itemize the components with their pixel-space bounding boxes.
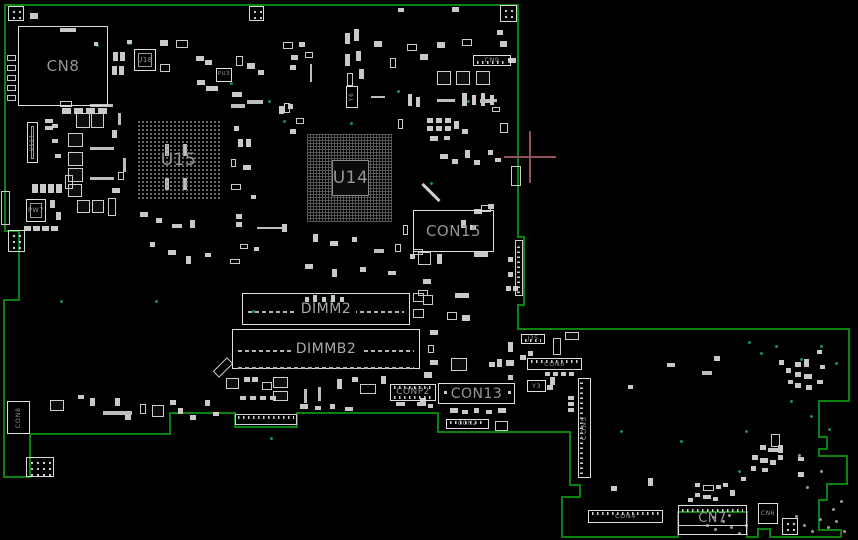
small-component xyxy=(506,360,514,366)
small-component xyxy=(40,184,46,193)
small-component xyxy=(127,40,132,44)
small-component xyxy=(206,86,218,91)
small-component xyxy=(395,244,401,252)
small-component xyxy=(486,410,492,414)
small-component xyxy=(273,377,288,388)
small-component xyxy=(352,237,357,242)
small-component xyxy=(78,395,84,399)
component-label-pw7: PW7 xyxy=(28,207,44,214)
component-label-con6: CON6 xyxy=(544,361,565,368)
small-component xyxy=(77,200,90,213)
small-component xyxy=(282,224,287,232)
small-component xyxy=(356,51,361,61)
small-component xyxy=(230,259,240,264)
small-component xyxy=(488,150,493,155)
small-component xyxy=(444,136,450,140)
small-component xyxy=(290,65,296,70)
small-component xyxy=(702,371,712,375)
small-component xyxy=(506,286,511,291)
small-component xyxy=(243,165,251,170)
small-component xyxy=(152,405,164,417)
via-dot xyxy=(835,520,838,523)
small-component xyxy=(30,13,38,19)
component-label-con2: CON2 xyxy=(458,421,477,427)
small-component xyxy=(786,368,791,373)
component-y6[interactable]: Y6 xyxy=(346,86,358,108)
small-component xyxy=(820,365,825,369)
small-component xyxy=(232,92,242,97)
small-component xyxy=(283,42,293,49)
small-component xyxy=(32,184,38,193)
boardview-canvas: CN8U18PU3CN9Y6U15U14US04PW7CON15DIMM2DIM… xyxy=(0,0,858,540)
component-con5[interactable]: CON5 xyxy=(578,378,591,478)
small-component xyxy=(62,108,71,114)
small-component xyxy=(236,56,243,66)
small-component xyxy=(568,408,574,412)
component-label-u18: U18 xyxy=(137,57,153,64)
small-component xyxy=(714,356,720,361)
small-component xyxy=(51,226,58,231)
small-component xyxy=(445,118,451,123)
small-component xyxy=(611,486,617,491)
small-component xyxy=(160,40,168,46)
small-component xyxy=(511,166,521,186)
small-component xyxy=(760,458,768,463)
small-component xyxy=(474,408,479,413)
component-label-u15: U15 xyxy=(161,152,197,169)
small-component xyxy=(388,271,396,275)
small-component xyxy=(428,345,434,353)
small-component xyxy=(296,118,304,124)
small-component xyxy=(508,375,513,380)
small-component xyxy=(291,55,298,60)
small-component xyxy=(257,227,283,229)
small-component xyxy=(770,460,776,465)
small-component xyxy=(648,478,653,486)
component-label-con8: CON8 xyxy=(16,407,22,428)
small-component xyxy=(246,139,251,147)
via-dot xyxy=(819,518,822,521)
component-label-cn6: CN6 xyxy=(761,511,775,517)
small-component xyxy=(354,29,359,41)
small-component xyxy=(804,374,812,379)
small-component xyxy=(413,293,424,302)
small-component xyxy=(68,152,83,166)
small-component xyxy=(528,351,533,356)
small-component xyxy=(476,71,490,85)
small-component xyxy=(258,70,264,75)
small-component xyxy=(695,493,700,497)
small-component xyxy=(7,95,16,101)
component-label-us04: US04 xyxy=(30,134,35,151)
small-component xyxy=(68,133,83,147)
small-component xyxy=(226,378,239,389)
small-component xyxy=(371,96,385,98)
small-component xyxy=(515,240,523,296)
small-component xyxy=(390,58,396,68)
small-component xyxy=(498,408,506,413)
small-component xyxy=(56,212,61,220)
small-component xyxy=(703,485,714,491)
small-component xyxy=(374,41,382,47)
small-component xyxy=(452,7,459,12)
small-component xyxy=(497,30,503,35)
small-component xyxy=(254,247,259,251)
small-component xyxy=(688,498,693,502)
small-component xyxy=(561,372,566,376)
via-dot xyxy=(840,500,843,503)
small-component xyxy=(33,226,40,231)
test-point xyxy=(268,100,271,103)
small-component xyxy=(768,448,778,452)
component-con4[interactable]: CON4 xyxy=(588,510,663,523)
small-component xyxy=(695,483,700,487)
small-component xyxy=(454,121,459,129)
test-point xyxy=(283,120,286,123)
component-label-conp2: CONP2 xyxy=(396,388,430,397)
small-component xyxy=(90,147,114,150)
small-component xyxy=(407,44,417,51)
small-component xyxy=(447,312,457,320)
small-component xyxy=(196,56,204,61)
small-component xyxy=(170,400,176,405)
via-dot xyxy=(820,470,823,473)
small-component xyxy=(7,85,16,91)
via-dot xyxy=(827,526,830,529)
component-label-pu3: PU3 xyxy=(218,72,230,78)
small-component xyxy=(150,242,155,247)
small-component xyxy=(178,408,183,414)
small-component xyxy=(156,218,162,223)
component-cn7[interactable]: CN7 xyxy=(678,505,747,535)
small-component xyxy=(795,383,801,388)
small-component xyxy=(703,495,711,499)
small-component xyxy=(723,483,728,487)
test-point xyxy=(430,182,433,185)
component-label-dimmb2: DIMMB2 xyxy=(291,342,362,356)
small-component xyxy=(120,52,125,61)
small-component xyxy=(205,253,211,257)
small-component xyxy=(427,126,433,131)
small-component xyxy=(430,360,438,365)
component-label-con13: CON13 xyxy=(451,387,503,401)
component-u14[interactable]: U14 xyxy=(307,134,392,222)
small-component xyxy=(359,69,364,79)
small-component xyxy=(251,195,256,199)
small-component xyxy=(428,404,433,408)
small-component xyxy=(423,295,433,305)
small-component xyxy=(330,404,335,409)
small-component xyxy=(730,490,735,496)
small-component xyxy=(492,107,500,112)
component-dimm2[interactable]: DIMM2 xyxy=(242,293,410,325)
small-component xyxy=(547,385,553,390)
via-dot xyxy=(803,524,806,527)
small-component xyxy=(52,139,58,143)
small-component xyxy=(437,254,442,264)
via-dot xyxy=(832,508,835,511)
small-component xyxy=(462,410,468,414)
component-cn6[interactable]: CN6 xyxy=(758,503,778,524)
test-point xyxy=(835,362,838,365)
component-label-con5: CON5 xyxy=(581,416,588,440)
small-component xyxy=(352,377,358,382)
small-component xyxy=(423,279,431,284)
small-component xyxy=(112,66,117,75)
small-component xyxy=(247,100,263,104)
test-point xyxy=(775,345,778,348)
small-component xyxy=(569,372,574,376)
fiducial-mark xyxy=(26,457,54,477)
small-component xyxy=(7,65,16,71)
small-component xyxy=(205,60,212,65)
small-component xyxy=(300,404,308,409)
test-point xyxy=(397,90,400,93)
small-component xyxy=(244,377,250,382)
small-component xyxy=(445,126,451,131)
small-component xyxy=(462,315,470,321)
small-component xyxy=(234,126,239,131)
small-component xyxy=(235,414,297,425)
test-point xyxy=(350,122,353,125)
test-point xyxy=(745,430,748,433)
small-component xyxy=(751,466,756,471)
small-component xyxy=(337,379,342,389)
small-component xyxy=(305,52,313,58)
small-component xyxy=(172,224,182,228)
small-component xyxy=(91,113,104,128)
small-component xyxy=(168,250,176,255)
test-point xyxy=(270,437,273,440)
small-component xyxy=(299,42,305,47)
test-point xyxy=(748,341,751,344)
component-conp2[interactable]: CONP2 xyxy=(390,384,436,401)
small-component xyxy=(247,63,255,69)
via-dot xyxy=(806,486,809,489)
small-component xyxy=(760,445,766,450)
small-component xyxy=(108,198,116,216)
small-component xyxy=(140,404,146,414)
component-con6[interactable]: CON6 xyxy=(527,358,582,370)
small-component xyxy=(550,377,555,385)
small-component xyxy=(240,244,248,249)
small-component xyxy=(778,445,783,453)
small-component xyxy=(55,154,61,158)
small-component xyxy=(628,385,633,389)
fiducial-mark xyxy=(782,518,798,535)
small-component xyxy=(817,380,823,384)
small-component xyxy=(752,455,758,460)
small-component xyxy=(398,119,403,129)
small-component xyxy=(315,406,321,410)
small-component xyxy=(252,377,258,382)
small-component xyxy=(7,55,16,61)
board-outline-path xyxy=(4,5,849,537)
small-component xyxy=(381,376,386,384)
test-point xyxy=(800,358,803,361)
small-component xyxy=(231,184,241,190)
bga-die: U14 xyxy=(332,160,369,196)
small-component xyxy=(92,200,104,213)
component-label-con15: CON15 xyxy=(426,224,481,239)
small-component xyxy=(318,387,321,401)
small-component xyxy=(374,249,384,253)
test-point xyxy=(810,415,813,418)
component-label-cn9: CN9 xyxy=(484,57,499,64)
component-label-j25: J25 xyxy=(528,336,539,342)
fiducial-mark xyxy=(8,230,25,252)
small-component xyxy=(806,385,812,390)
test-point xyxy=(467,100,470,103)
component-cn9[interactable]: CN9 xyxy=(473,55,511,66)
small-component xyxy=(90,177,114,180)
component-con2[interactable]: CON2 xyxy=(446,419,489,429)
small-component xyxy=(520,355,526,360)
small-component xyxy=(508,257,513,262)
small-component xyxy=(260,396,266,400)
small-component xyxy=(213,412,219,416)
small-component xyxy=(408,94,412,106)
test-point xyxy=(60,300,63,303)
test-point xyxy=(738,470,741,473)
test-point xyxy=(828,428,831,431)
component-us04[interactable]: US04 xyxy=(27,122,38,163)
small-component xyxy=(250,396,256,400)
small-component xyxy=(500,41,507,47)
small-component xyxy=(568,402,574,406)
small-component xyxy=(452,159,458,164)
small-component xyxy=(418,252,431,265)
component-label-dimm2: DIMM2 xyxy=(296,302,356,316)
small-component xyxy=(205,400,210,406)
fiducial-mark xyxy=(8,6,24,21)
small-component xyxy=(160,64,170,72)
small-component xyxy=(290,129,296,134)
small-component xyxy=(190,415,196,420)
small-component xyxy=(403,225,408,235)
fiducial-mark xyxy=(500,5,517,22)
small-component xyxy=(345,407,353,411)
small-component xyxy=(50,400,64,411)
small-component xyxy=(176,40,188,48)
component-y3[interactable]: Y3 xyxy=(527,380,546,392)
small-component xyxy=(451,358,467,371)
small-component xyxy=(430,136,438,141)
component-pu3[interactable]: PU3 xyxy=(216,68,232,82)
small-component xyxy=(190,220,195,228)
small-component xyxy=(1,191,10,225)
small-component xyxy=(741,477,746,481)
small-component xyxy=(236,222,242,227)
component-pw7[interactable]: PW7 xyxy=(26,199,46,222)
small-component xyxy=(304,389,307,403)
small-component xyxy=(716,485,721,489)
component-con15[interactable]: CON15 xyxy=(413,210,494,252)
via-dot xyxy=(811,530,814,533)
small-component xyxy=(90,398,95,406)
component-label-u14: U14 xyxy=(333,170,369,187)
test-point xyxy=(820,345,823,348)
small-component xyxy=(779,360,784,365)
small-component xyxy=(798,457,804,461)
small-component xyxy=(667,363,675,367)
small-component xyxy=(347,73,353,86)
small-component xyxy=(240,396,246,400)
small-component xyxy=(118,113,121,125)
test-point xyxy=(760,352,763,355)
component-cn8[interactable]: CN8 xyxy=(18,26,108,106)
small-component xyxy=(437,71,451,85)
small-component xyxy=(236,214,242,219)
small-component xyxy=(125,415,131,420)
small-component xyxy=(396,402,405,406)
small-component xyxy=(123,158,126,172)
small-component xyxy=(472,95,476,105)
small-component xyxy=(788,380,793,384)
small-component xyxy=(553,372,558,376)
component-u18[interactable]: U18 xyxy=(134,49,156,71)
small-component xyxy=(140,212,148,217)
small-component xyxy=(462,39,472,46)
test-point xyxy=(230,82,233,85)
small-component xyxy=(495,158,501,162)
small-component xyxy=(508,272,513,277)
small-component xyxy=(270,396,276,400)
via-dot xyxy=(843,530,846,533)
component-con13[interactable]: CON13 xyxy=(438,383,515,404)
small-component xyxy=(345,54,350,66)
component-label-con4: CON4 xyxy=(615,513,636,520)
small-component xyxy=(778,455,783,460)
small-component xyxy=(45,119,53,123)
small-component xyxy=(713,497,718,501)
small-component xyxy=(462,129,468,134)
small-component xyxy=(56,184,62,193)
small-component xyxy=(65,175,73,189)
small-component xyxy=(7,75,16,81)
small-component xyxy=(42,226,49,231)
small-component xyxy=(450,408,458,413)
small-component xyxy=(112,188,120,193)
small-component xyxy=(313,234,318,242)
test-point xyxy=(620,430,623,433)
small-component xyxy=(430,330,438,335)
small-component xyxy=(490,95,494,105)
component-label-cn8: CN8 xyxy=(47,59,80,74)
small-component xyxy=(413,309,424,318)
small-component xyxy=(310,64,312,82)
small-component xyxy=(436,118,442,123)
small-component xyxy=(238,139,243,147)
small-component xyxy=(489,362,495,367)
small-component xyxy=(798,472,804,477)
small-component xyxy=(817,350,822,354)
small-component xyxy=(497,359,502,367)
small-component xyxy=(284,103,290,113)
component-j25[interactable]: J25 xyxy=(521,334,545,344)
component-con8[interactable]: CON8 xyxy=(7,401,30,434)
fiducial-mark xyxy=(249,6,264,21)
small-component xyxy=(345,33,350,44)
component-u15[interactable]: U15 xyxy=(137,120,220,200)
small-component xyxy=(76,113,90,128)
small-component xyxy=(231,159,236,167)
small-component xyxy=(437,99,455,102)
component-label-cn7: CN7 xyxy=(679,512,746,525)
component-dimmb2[interactable]: DIMMB2 xyxy=(232,329,420,369)
test-point xyxy=(790,400,793,403)
small-component xyxy=(417,402,426,406)
